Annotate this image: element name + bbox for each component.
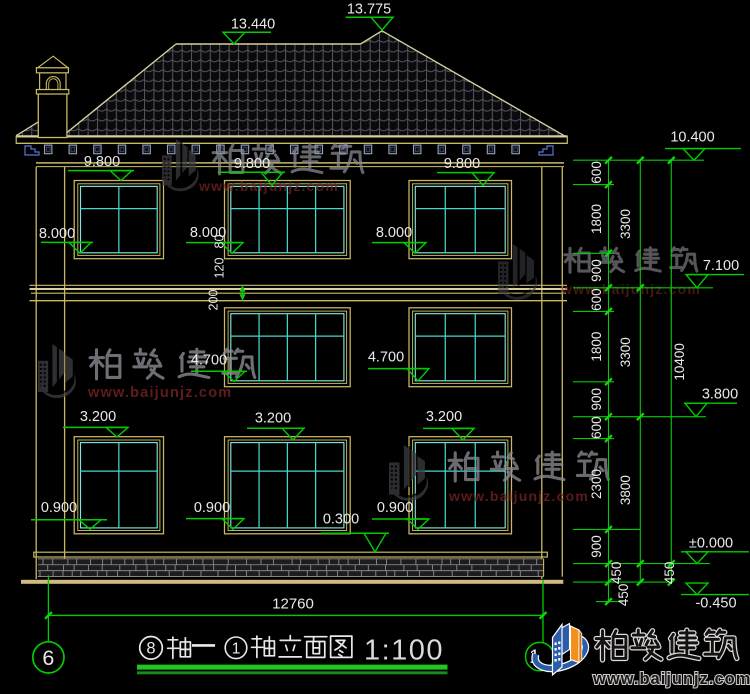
svg-text:200: 200 xyxy=(207,290,221,311)
svg-text:www.baijunjz.com: www.baijunjz.com xyxy=(448,488,589,504)
svg-text:7.100: 7.100 xyxy=(703,258,739,274)
svg-text:900: 900 xyxy=(589,259,604,282)
svg-text:1800: 1800 xyxy=(589,332,604,362)
svg-text:8.000: 8.000 xyxy=(39,226,75,242)
svg-text:www.baijunjz.com: www.baijunjz.com xyxy=(592,670,750,688)
svg-text:450: 450 xyxy=(616,584,631,607)
svg-text:6: 6 xyxy=(42,646,54,670)
svg-text:3.200: 3.200 xyxy=(80,409,116,425)
svg-text:3800: 3800 xyxy=(618,475,633,505)
svg-text:4.700: 4.700 xyxy=(191,353,227,369)
svg-text:www.baijunjz.com: www.baijunjz.com xyxy=(560,281,701,297)
svg-text:900: 900 xyxy=(589,388,604,411)
svg-text:0.900: 0.900 xyxy=(41,500,77,516)
svg-text:600: 600 xyxy=(589,288,604,311)
svg-text:8.000: 8.000 xyxy=(376,225,412,241)
svg-text:10400: 10400 xyxy=(672,343,687,381)
svg-text:1: 1 xyxy=(232,640,241,657)
svg-text:9.800: 9.800 xyxy=(234,156,270,172)
svg-text:9.800: 9.800 xyxy=(444,156,480,172)
svg-text:±0.000: ±0.000 xyxy=(689,536,733,552)
svg-text:1800: 1800 xyxy=(589,204,604,234)
svg-text:12760: 12760 xyxy=(272,596,314,613)
svg-text:3300: 3300 xyxy=(618,209,633,239)
svg-text:120: 120 xyxy=(213,258,227,279)
svg-text:3.200: 3.200 xyxy=(426,409,462,425)
svg-text:3.800: 3.800 xyxy=(702,387,738,403)
svg-text:www.baijunjz.com: www.baijunjz.com xyxy=(87,385,232,401)
svg-text:8: 8 xyxy=(146,640,155,658)
svg-text:13.775: 13.775 xyxy=(347,2,391,18)
svg-text:13.440: 13.440 xyxy=(231,17,275,33)
svg-text:4.700: 4.700 xyxy=(368,350,404,366)
svg-text:600: 600 xyxy=(589,416,604,439)
svg-text:0.300: 0.300 xyxy=(323,512,359,528)
svg-text:600: 600 xyxy=(589,161,604,184)
svg-text:450: 450 xyxy=(609,562,624,585)
svg-text:900: 900 xyxy=(589,535,604,558)
svg-text:-0.450: -0.450 xyxy=(695,596,736,612)
svg-text:450: 450 xyxy=(662,562,677,585)
svg-text:10.400: 10.400 xyxy=(670,130,714,146)
svg-text:9.800: 9.800 xyxy=(84,154,120,170)
svg-text:3300: 3300 xyxy=(618,337,633,367)
svg-text:3.200: 3.200 xyxy=(255,411,291,427)
svg-text:80: 80 xyxy=(213,235,227,249)
svg-text:0.900: 0.900 xyxy=(194,500,230,516)
svg-text:2300: 2300 xyxy=(589,469,604,499)
svg-text:1:100: 1:100 xyxy=(364,635,444,667)
svg-text:0.900: 0.900 xyxy=(377,500,413,516)
